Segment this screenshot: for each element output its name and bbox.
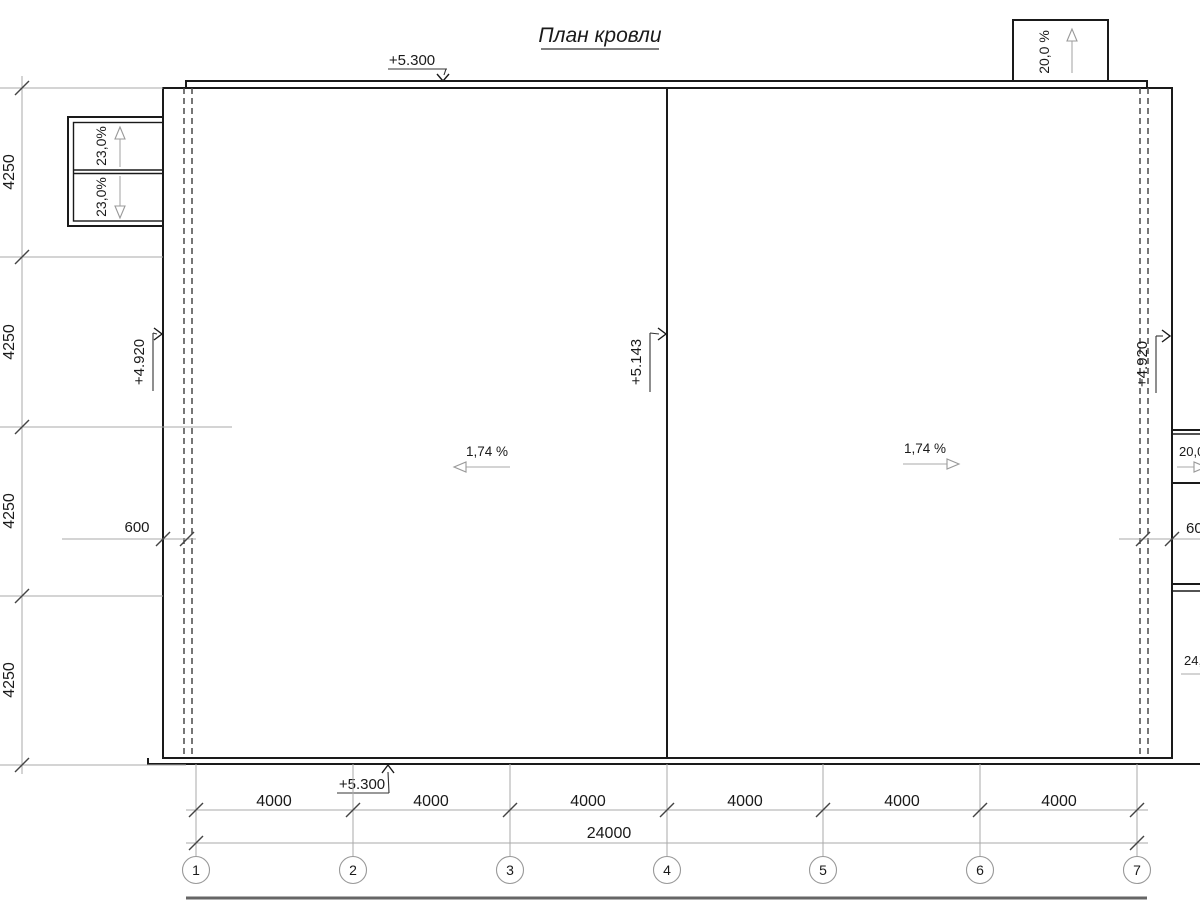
slope-right-annotation: 1,74 % xyxy=(903,441,959,469)
left-dimension-chain: 4250 4250 4250 4250 xyxy=(0,76,232,774)
roof-plan-drawing: План кровли 23,0% 23,0% 20,0 % xyxy=(0,0,1200,900)
parapet-dim-right: 600 xyxy=(1119,520,1200,546)
right-arrow-icon xyxy=(947,459,959,469)
left-dim-label-3: 4250 xyxy=(1,493,18,529)
right-canopy-slope-label: 20,0 xyxy=(1179,444,1200,459)
right-arrow-icon xyxy=(1194,462,1200,472)
right-arrowhead-icon xyxy=(658,328,666,340)
top-right-canopy-outline xyxy=(1013,20,1108,81)
axis-label-5: 5 xyxy=(819,862,827,878)
right-arrowhead-icon xyxy=(1162,330,1170,342)
axis-label-1: 1 xyxy=(192,862,200,878)
elevation-right-label: +4.920 xyxy=(1134,341,1151,387)
parapet-right-dim-label: 600 xyxy=(1186,520,1200,537)
left-dim-label-4: 4250 xyxy=(1,662,18,698)
down-arrowhead-icon xyxy=(437,74,449,81)
top-right-canopy: 20,0 % xyxy=(1013,20,1108,81)
elevation-left-eave: +4.920 xyxy=(131,328,162,391)
drawing-title: План кровли xyxy=(538,24,662,49)
bottom-dim-label-1: 4000 xyxy=(256,793,292,810)
bottom-dim-label-3: 4000 xyxy=(570,793,606,810)
axis-label-6: 6 xyxy=(976,862,984,878)
up-arrow-icon xyxy=(115,127,125,139)
left-canopy-outer xyxy=(68,117,163,226)
parapet-left-dim-label: 600 xyxy=(124,519,149,536)
roof-top-parapet-edge xyxy=(186,81,1147,88)
axis-label-2: 2 xyxy=(349,862,357,878)
slope-left-label: 1,74 % xyxy=(466,444,508,459)
elevation-bottom: +5.300 xyxy=(337,765,394,793)
elevation-ridge: +5.143 xyxy=(628,328,666,392)
roof-plan-sheet: План кровли 23,0% 23,0% 20,0 % xyxy=(0,0,1200,900)
left-dim-label-2: 4250 xyxy=(1,324,18,360)
bottom-dim-label-2: 4000 xyxy=(413,793,449,810)
left-canopy: 23,0% 23,0% xyxy=(68,117,163,226)
elevation-left-label: +4.920 xyxy=(131,339,148,385)
elevation-ridge-label: +5.143 xyxy=(628,339,645,385)
bottom-dimension-chain: 4000 4000 4000 4000 4000 4000 24000 xyxy=(186,764,1148,856)
axis-label-3: 3 xyxy=(506,862,514,878)
left-arrow-icon xyxy=(454,462,466,472)
left-canopy-upper-slope-label: 23,0% xyxy=(93,126,109,166)
bottom-dim-label-4: 4000 xyxy=(727,793,763,810)
slope-left-annotation: 1,74 % xyxy=(454,444,510,472)
down-arrow-icon xyxy=(115,206,125,218)
left-dim-label-1: 4250 xyxy=(1,154,18,190)
up-arrowhead-icon xyxy=(382,765,394,773)
title-text: План кровли xyxy=(538,24,662,47)
elevation-top-label: +5.300 xyxy=(389,52,435,69)
top-canopy-slope-label: 20,0 % xyxy=(1036,30,1052,74)
parapet-dim-left: 600 xyxy=(62,519,196,546)
parapet-dashed-left xyxy=(184,88,192,758)
up-arrow-icon xyxy=(1067,29,1077,41)
parapet-dashed-right xyxy=(1140,88,1148,758)
left-canopy-lower-slope-label: 23,0% xyxy=(93,177,109,217)
bottom-dim-label-6: 4000 xyxy=(1041,793,1077,810)
total-dim-label: 24000 xyxy=(587,825,632,842)
axis-label-7: 7 xyxy=(1133,862,1141,878)
axis-label-4: 4 xyxy=(663,862,671,878)
bottom-dim-label-5: 4000 xyxy=(884,793,920,810)
right-lower-label: 24, xyxy=(1184,653,1200,668)
slope-right-label: 1,74 % xyxy=(904,441,946,456)
elevation-bottom-label: +5.300 xyxy=(339,776,385,793)
elevation-top: +5.300 xyxy=(388,52,449,81)
right-canopy: 20,0 24, xyxy=(1172,430,1200,674)
grid-axis-bubbles: 1 2 3 4 5 6 7 xyxy=(183,857,1151,884)
